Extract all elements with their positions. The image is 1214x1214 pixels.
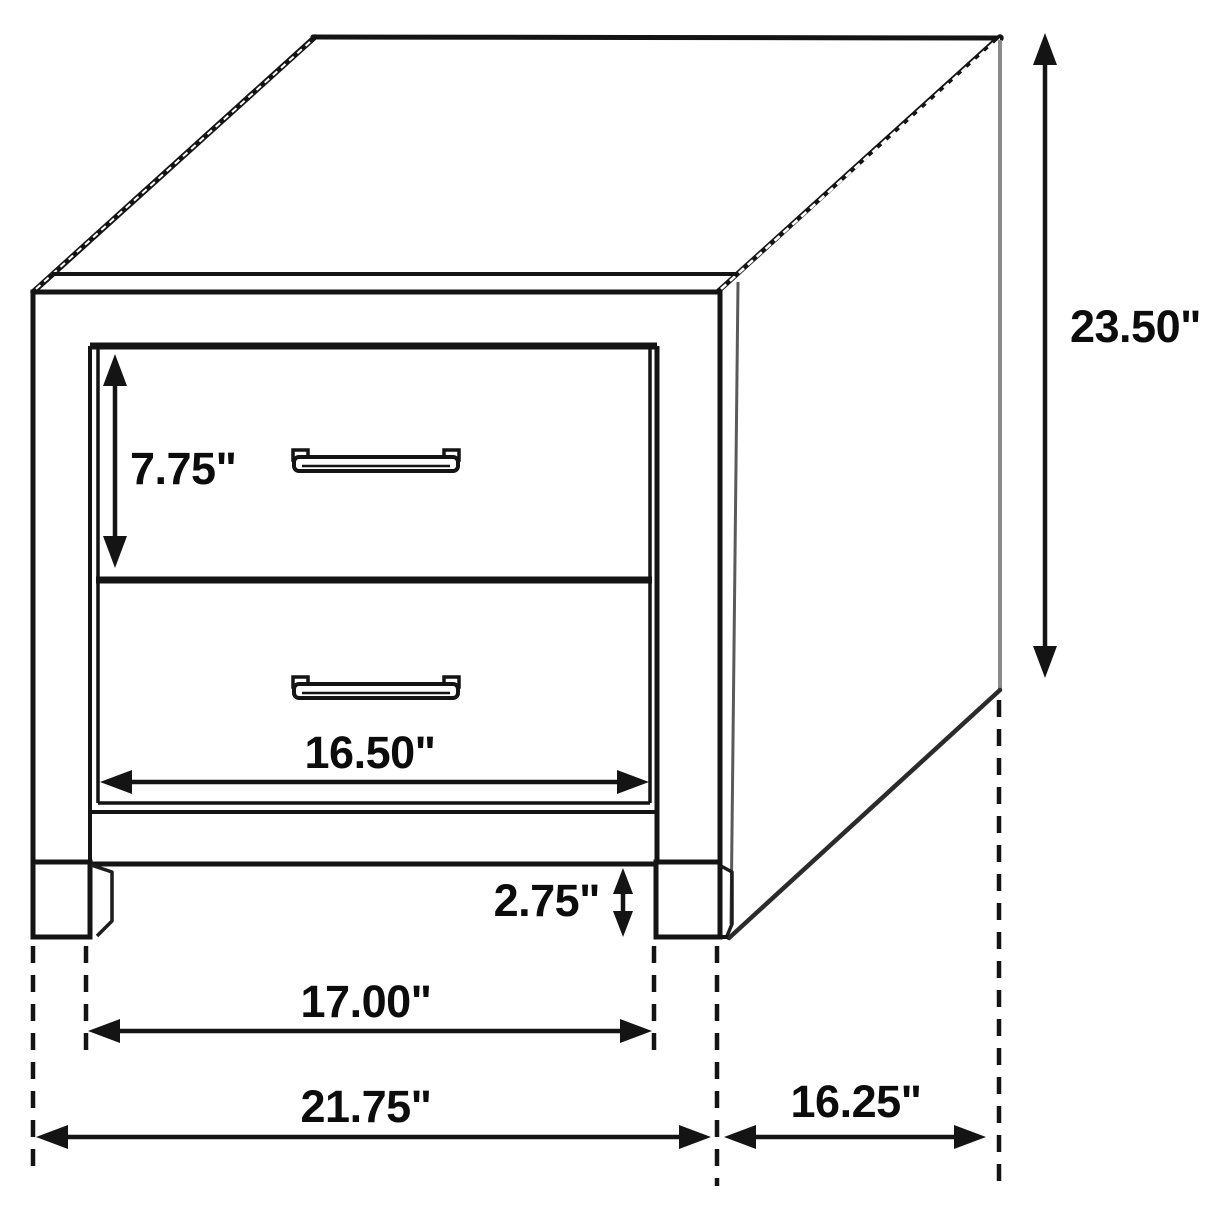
inner-width-label: 17.00" — [301, 976, 432, 1027]
handle-bar — [294, 684, 458, 698]
handle-bar — [294, 457, 458, 471]
leg-height-label: 2.75" — [494, 875, 600, 926]
inner-width-dimension: 17.00" — [88, 976, 652, 1043]
overall-height-dimension: 23.50" — [1033, 33, 1201, 678]
overall-depth-dimension: 16.25" — [724, 1076, 986, 1149]
overall-width-dimension: 21.75" — [36, 1081, 711, 1149]
diagram-canvas: 7.75" 23.50" 16.50" 2.75" 17.00" 21.75" — [0, 0, 1214, 1214]
overall-depth-label: 16.25" — [791, 1076, 922, 1127]
right-leg — [656, 862, 732, 937]
leg-height-dimension: 2.75" — [494, 868, 633, 937]
overall-height-label: 23.50" — [1070, 301, 1201, 352]
left-leg — [33, 862, 112, 937]
nightstand-dimension-diagram: 7.75" 23.50" 16.50" 2.75" 17.00" 21.75" — [0, 0, 1214, 1214]
drawer-height-label: 7.75" — [130, 443, 236, 494]
overall-width-label: 21.75" — [301, 1081, 432, 1132]
drawer-width-label: 16.50" — [305, 727, 436, 778]
